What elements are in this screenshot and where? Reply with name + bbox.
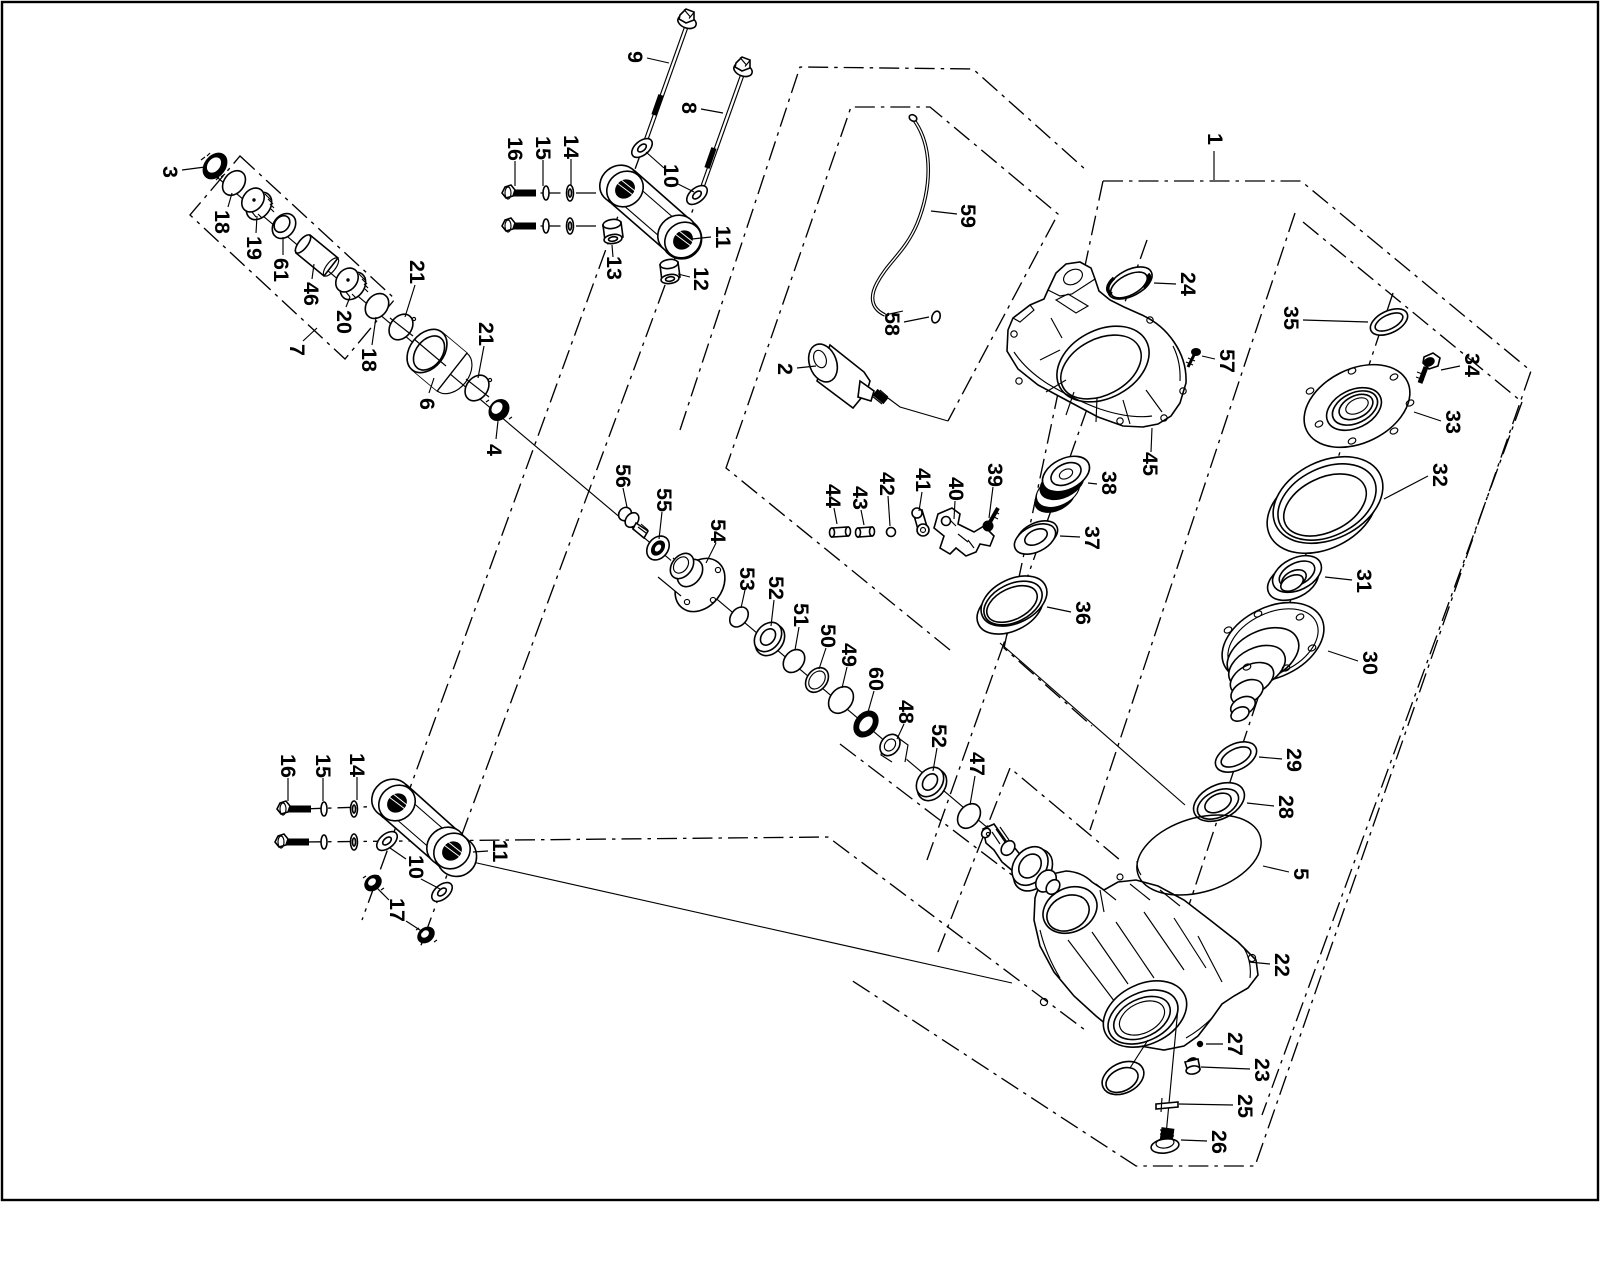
svg-text:5: 5 (1289, 868, 1313, 880)
svg-text:13: 13 (602, 256, 626, 280)
svg-text:38: 38 (1097, 471, 1121, 495)
svg-text:11: 11 (488, 840, 512, 863)
svg-text:1: 1 (1203, 133, 1227, 145)
svg-text:46: 46 (299, 282, 323, 306)
svg-text:55: 55 (652, 488, 676, 512)
svg-text:28: 28 (1274, 795, 1298, 819)
svg-text:10: 10 (404, 855, 428, 879)
svg-text:60: 60 (864, 667, 888, 691)
svg-text:26: 26 (1207, 1130, 1231, 1154)
svg-text:8: 8 (677, 102, 701, 114)
svg-text:31: 31 (1352, 569, 1376, 593)
svg-text:14: 14 (345, 753, 369, 777)
svg-text:56: 56 (611, 464, 635, 488)
svg-text:15: 15 (311, 754, 335, 778)
svg-text:40: 40 (944, 477, 968, 501)
svg-text:58: 58 (880, 312, 904, 336)
svg-text:19: 19 (242, 236, 266, 260)
svg-text:47: 47 (965, 752, 989, 776)
svg-text:15: 15 (531, 136, 555, 160)
svg-text:7: 7 (285, 344, 309, 356)
svg-text:17: 17 (385, 898, 409, 922)
svg-text:57: 57 (1215, 349, 1239, 373)
svg-text:30: 30 (1358, 651, 1382, 675)
svg-text:32: 32 (1428, 463, 1452, 487)
svg-text:14: 14 (559, 135, 583, 159)
svg-text:21: 21 (474, 322, 498, 346)
svg-text:42: 42 (875, 472, 899, 496)
svg-text:50: 50 (816, 624, 840, 648)
svg-text:36: 36 (1071, 601, 1095, 625)
svg-text:44: 44 (821, 484, 845, 508)
svg-text:4: 4 (482, 444, 506, 456)
svg-text:52: 52 (764, 576, 788, 600)
svg-text:9: 9 (623, 51, 647, 63)
svg-text:21: 21 (405, 260, 429, 284)
svg-text:54: 54 (706, 519, 730, 543)
svg-text:24: 24 (1176, 272, 1200, 296)
svg-text:29: 29 (1282, 748, 1306, 772)
svg-text:45: 45 (1138, 452, 1162, 476)
svg-text:6: 6 (415, 398, 439, 410)
svg-text:49: 49 (837, 643, 861, 667)
svg-text:11: 11 (711, 226, 735, 249)
svg-text:16: 16 (503, 137, 527, 161)
svg-text:23: 23 (1250, 1058, 1274, 1082)
svg-text:51: 51 (789, 603, 813, 627)
svg-text:27: 27 (1223, 1032, 1247, 1056)
svg-text:41: 41 (911, 468, 935, 492)
svg-text:2: 2 (773, 363, 797, 375)
svg-text:20: 20 (332, 310, 356, 334)
svg-text:34: 34 (1460, 353, 1484, 377)
svg-text:53: 53 (735, 567, 759, 591)
svg-text:16: 16 (276, 754, 300, 778)
svg-text:35: 35 (1279, 306, 1303, 330)
svg-text:12: 12 (689, 267, 713, 291)
svg-text:37: 37 (1080, 526, 1104, 550)
svg-text:39: 39 (983, 463, 1007, 487)
svg-text:52: 52 (927, 724, 951, 748)
svg-text:25: 25 (1233, 1094, 1257, 1118)
svg-text:10: 10 (659, 164, 683, 188)
svg-text:18: 18 (357, 348, 381, 372)
svg-text:48: 48 (894, 700, 918, 724)
svg-text:43: 43 (848, 486, 872, 510)
svg-text:3: 3 (158, 166, 182, 178)
svg-text:18: 18 (210, 210, 234, 234)
svg-text:59: 59 (956, 204, 980, 228)
svg-text:33: 33 (1441, 410, 1465, 434)
svg-text:61: 61 (269, 258, 293, 282)
svg-text:22: 22 (1270, 953, 1294, 977)
